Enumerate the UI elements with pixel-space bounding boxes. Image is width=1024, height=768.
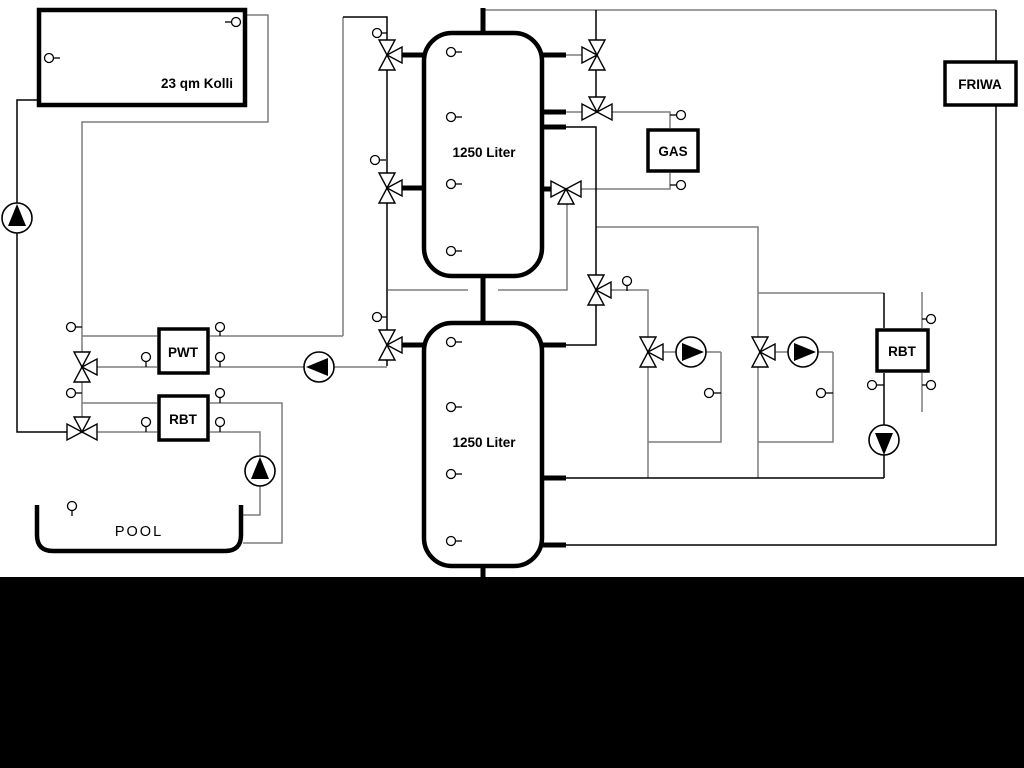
pool-label: POOL	[115, 524, 163, 540]
solar-collector-label: 23 qm Kolli	[161, 76, 233, 91]
hydraulic-schematic: 23 qm Kolli 1250 Liter 1250 Liter GAS FR…	[0, 0, 1024, 768]
friwa-label: FRIWA	[958, 77, 1002, 92]
heating-circuit-2-pump	[788, 337, 818, 367]
pwt-charge-pump	[304, 352, 334, 382]
heating-circuit-1-pump	[676, 337, 706, 367]
rbt-left-label: RBT	[169, 412, 197, 427]
solar-pump	[2, 203, 32, 233]
rbt-right-label: RBT	[888, 344, 916, 359]
gas-boiler-label: GAS	[658, 144, 687, 159]
rbt-right-pump	[869, 425, 899, 455]
plate-heat-exchanger-label: PWT	[168, 345, 199, 360]
buffer-tank-1-label: 1250 Liter	[452, 145, 516, 160]
pool-pump	[245, 456, 275, 486]
bottom-black-band	[0, 577, 1024, 768]
buffer-tank-2-label: 1250 Liter	[452, 435, 516, 450]
